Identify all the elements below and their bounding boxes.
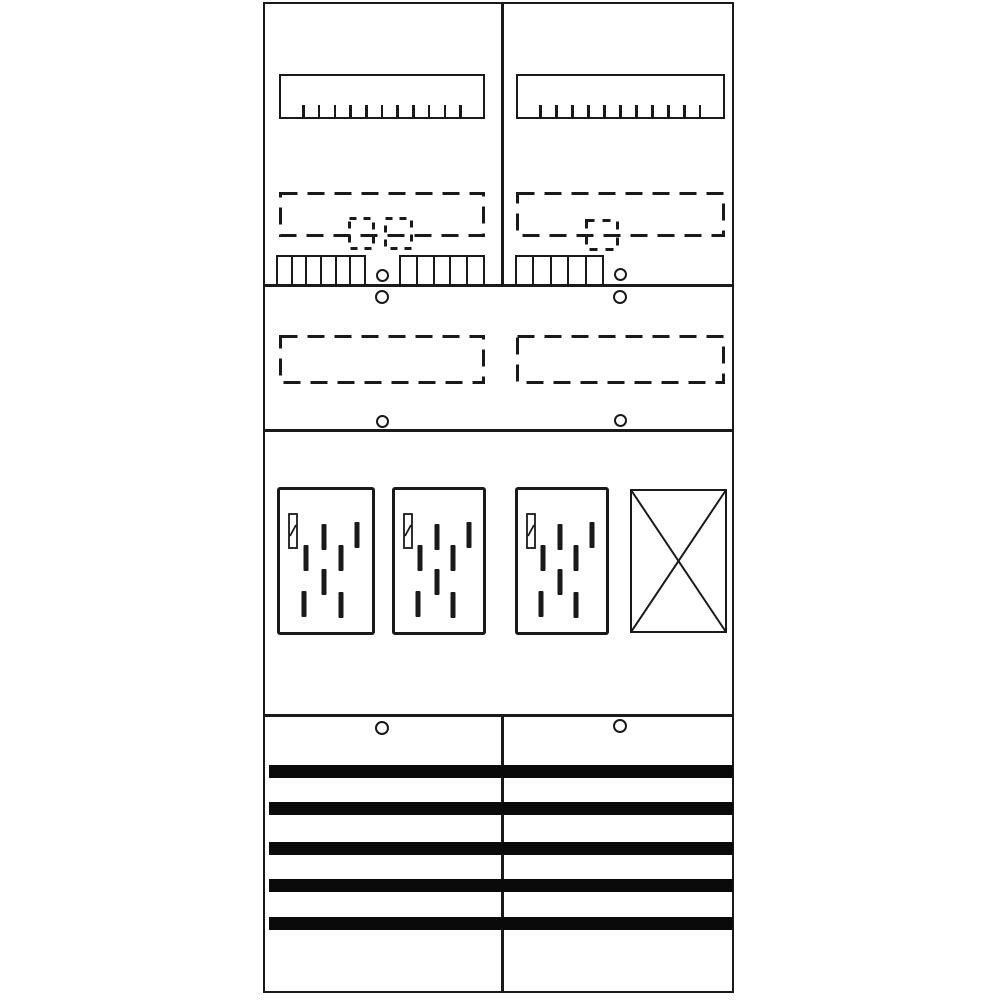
comb-cell [466,257,483,284]
ruler-tick [603,105,606,117]
meter-hatch-mark [574,592,579,618]
comb-cell [515,257,532,284]
meter-hatch-mark [417,545,422,571]
meter-hatch-mark [540,545,545,571]
ruler-tick [365,105,368,117]
meter-hatch-mark [301,591,306,617]
fixing-screw [613,290,627,304]
busbar-comb [276,255,366,284]
meter-hatch-mark [435,524,440,550]
busbar [269,917,733,930]
seal-mark [526,513,536,549]
field-divider-upper [501,4,504,285]
fixing-screw [375,290,389,304]
ruler-tick [651,105,654,117]
board-outline [263,2,734,993]
fixing-screw [375,721,389,735]
meter-slot-2 [392,487,486,635]
reserve-area-mid-left [279,335,485,384]
meter-hatch-mark [466,522,471,548]
section-line-middle [265,429,732,432]
device-slot-marker [585,219,619,251]
ruler-tick [635,105,638,117]
busbar-comb [515,255,604,284]
comb-cell [433,257,450,284]
meter-hatch-mark [574,545,579,571]
ruler-tick [459,105,462,117]
comb-cell [291,257,306,284]
comb-cell [532,257,549,284]
comb-cell [550,257,567,284]
ruler-tick [571,105,574,117]
seal-mark [403,513,413,549]
meter-hatch-mark [355,522,360,548]
meter-hatch-mark [451,545,456,571]
meter-hatch-mark [451,592,456,618]
comb-cell [276,257,291,284]
meter-hatch-mark [338,592,343,618]
ruler-tick [444,105,447,117]
comb-cell [335,257,350,284]
ruler-tick [412,105,415,117]
fixing-screw [613,719,627,733]
comb-cell [585,257,602,284]
busbar [269,765,733,778]
meter-slot-3 [515,487,609,635]
comb-cell [399,257,416,284]
meter-hatch-mark [538,591,543,617]
fixing-screw [376,269,389,282]
meter-hatch-mark [435,569,440,595]
ruler-tick [555,105,558,117]
comb-cell [320,257,335,284]
comb-cell [449,257,466,284]
meter-hatch-mark [589,522,594,548]
ruler-tick [683,105,686,117]
comb-cell [305,257,320,284]
meter-hatch-mark [415,591,420,617]
meter-hatch-mark [338,545,343,571]
comb-cell [567,257,584,284]
fixing-screw [614,268,627,281]
ruler-tick [699,105,702,117]
meter-hatch-mark [322,524,327,550]
ruler-tick [667,105,670,117]
reserve-area-upper-right [516,192,725,237]
device-slot-marker [384,217,413,250]
meter-hatch-mark [322,569,327,595]
ruler-tick [381,105,384,117]
meter-hatch-mark [303,545,308,571]
reserve-area-mid-right [516,335,725,384]
ruler-tick [396,105,399,117]
ruler-tick [349,105,352,117]
ruler-tick [587,105,590,117]
ruler-tick [428,105,431,117]
busbar-comb [399,255,485,284]
meter-slot-1 [277,487,375,635]
meter-hatch-mark [558,569,563,595]
comb-cell [416,257,433,284]
ruler-tick [318,105,321,117]
meter-hatch-mark [558,524,563,550]
din-ruler-right [516,74,725,119]
seal-mark [288,513,298,549]
busbar [269,802,733,815]
busbar [269,842,733,855]
ruler-tick [334,105,337,117]
busbar [269,879,733,892]
device-slot-marker [348,217,375,250]
ruler-tick [619,105,622,117]
fixing-screw [614,414,627,427]
ruler-tick [539,105,542,117]
section-line-top [265,284,732,287]
meter-board-diagram [0,0,1000,1000]
din-ruler-left [279,74,485,119]
section-line-bottom [265,714,732,717]
comb-cell [349,257,364,284]
reserve-area-upper-left [279,192,485,237]
blank-cover-crossed [630,489,727,633]
ruler-tick [302,105,305,117]
fixing-screw [376,415,389,428]
